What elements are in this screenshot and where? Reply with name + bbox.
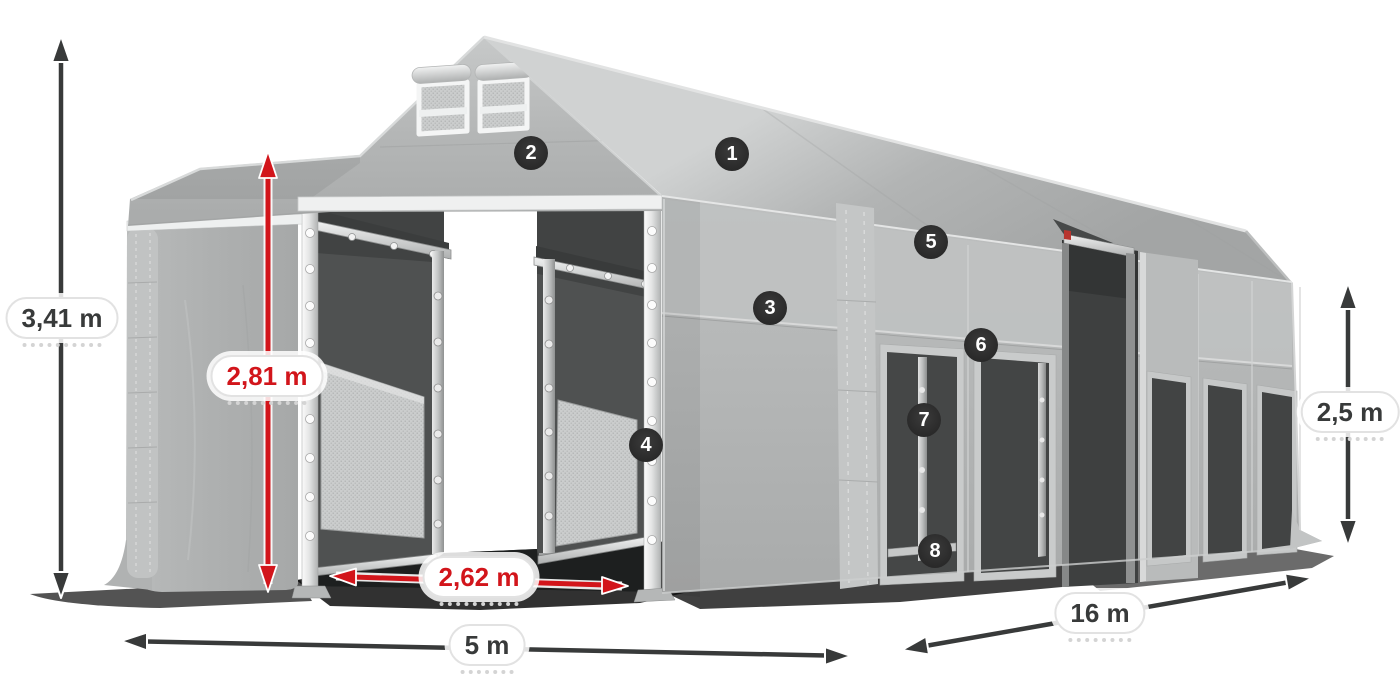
part-marker-5: 5	[914, 225, 948, 259]
side-corner-pillar	[836, 203, 878, 589]
dim-entrance-width-label: 2,62 m	[423, 556, 536, 598]
part-marker-7: 7	[907, 403, 941, 437]
part-marker-2: 2	[514, 136, 548, 170]
side-window-4	[1203, 378, 1247, 562]
side-door-opening	[1062, 230, 1138, 587]
dim-side-height-label: 2,5 m	[1301, 391, 1400, 433]
part-marker-8: 8	[918, 534, 952, 568]
side-window-2	[974, 350, 1056, 581]
part-marker-6: 6	[964, 328, 998, 362]
dim-side-length-label: 16 m	[1054, 592, 1145, 634]
side-door-red-tab	[1064, 230, 1071, 240]
gable-vent-left	[412, 64, 472, 134]
part-marker-4: 4	[629, 428, 663, 462]
dim-clear-height-label: 2,81 m	[211, 355, 324, 397]
dim-total-height-label: 3,41 m	[6, 297, 119, 339]
side-door-panel	[1140, 252, 1198, 582]
doorway-see-through	[444, 210, 537, 553]
tent-illustration	[0, 0, 1400, 700]
corner-pillar-front	[127, 228, 158, 578]
tent-dimension-diagram: 1 2 3 4 5 6 7 8 3,41 m 2,81 m 2,62 m 5 m…	[0, 0, 1400, 700]
front-doorway	[292, 206, 675, 602]
doorway-mesh-window-right	[556, 400, 637, 546]
dim-front-width-label: 5 m	[449, 624, 526, 666]
part-marker-1: 1	[715, 137, 749, 171]
part-marker-3: 3	[753, 291, 787, 325]
front-lintel-bar	[298, 195, 662, 211]
